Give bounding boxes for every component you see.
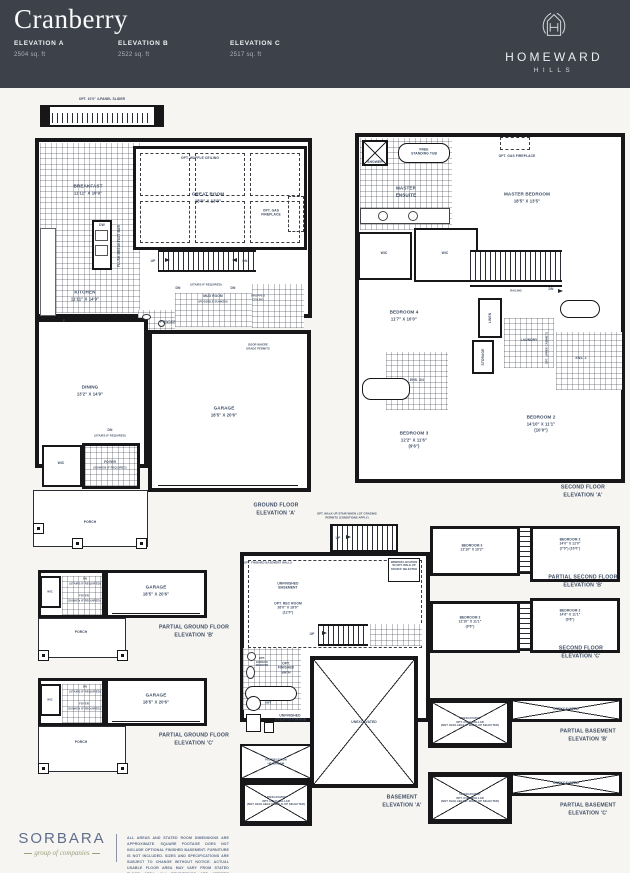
dropped-ceiling-note: DROPPED CEILING [249,295,267,302]
dn-label: DN [108,428,113,432]
room-breakfast: BREAKFAST 11'11" X 10'9" [74,184,103,197]
plan-caption-basement: BASEMENT ELEVATION 'A' [382,794,421,809]
room-bedroom2: BEDROOM 2 14'10" X 11'1" (10'0") [527,415,556,434]
house-emblem-icon [537,29,571,46]
stairs-note: (STAIRS IF REQUIRED) [69,582,101,586]
brochure-page: Cranberry ELEVATION A 2504 sq. ft ELEVAT… [0,0,630,873]
wic-walls [42,445,82,487]
porch-column [33,523,44,534]
up-arrow-icon [346,535,351,539]
stairs-note: (STAIRS IF REQUIRED) [94,434,126,438]
flourish-line [92,853,100,854]
dishwasher-label: DW [99,223,105,227]
fireplace-note: OPT. GAS FIREPLACE [260,209,282,218]
room-porch: PORCH [75,740,87,744]
plan-caption-ground: GROUND FLOOR ELEVATION 'A' [253,502,298,517]
room-unfinished-basement: UNFINISHED BASEMENT [271,582,305,591]
hwt-label: HWT [265,701,271,705]
unexcavated-label: UNEXCAVATED [351,720,376,724]
plan-caption: PARTIAL SECOND FLOOR ELEVATION 'B' [548,574,617,589]
room-bedroom4: BEDROOM 4 11'7" X 10'0" [390,310,419,323]
room-garage: GARAGE 18'5" X 20'6" [143,693,169,706]
elevation-c: ELEVATION C 2517 sq. ft [230,40,280,58]
basement-wall-note: OPT. FINISHED BASEMENT WALLS [244,561,292,565]
room-wic: WIC [442,251,449,255]
porch-column [72,538,83,549]
plan-caption: SECOND FLOOR ELEVATION 'C' [559,645,603,660]
up-arrow-icon [165,258,170,262]
shower-label: SHOWER [367,160,382,164]
elevation-c-area: 2517 sq. ft [230,52,280,58]
header: Cranberry ELEVATION A 2504 sq. ft ELEVAT… [0,0,630,88]
gas-fireplace-outline [500,137,530,150]
sorbara-logo: SORBARA group of companies [18,830,106,857]
room-porch: PORCH [84,520,96,524]
egress-note: OPT. EGRESS WINDOW [254,657,270,668]
garage-door [158,485,298,489]
room-dining: DINING 13'2" X 14'9" [77,385,103,398]
flourish-line [24,853,32,854]
cold-cellar-label: UNEXCAVATED OPT. COLD CELLAR (NOT AVAILA… [441,793,499,804]
up-arrow-icon [322,631,327,635]
window-note: WINDOW LOCATION W/ OPT. WALK-UP STAIR IF… [388,558,420,582]
kitchen-counter [40,228,56,316]
unexcavated-label: UNEXCAVATED [553,781,578,785]
door-grade-note: DOOR WHERE GRADE PERMITS [246,344,270,351]
footer-divider [116,834,117,862]
dn-label: DN [231,286,236,290]
foyer-note: (SUNKEN IF REQUIRED) [93,466,126,470]
dn-label: DN [176,286,181,290]
room-foyer: FOYER [104,460,116,464]
flush-bar-note: FLUSH BREAKFAST BAR [117,225,121,267]
room-kitchen: KITCHEN 11'11" X 14'9" [71,290,99,303]
room-wic: WIC [47,698,53,702]
homeward-hills-logo: HOMEWARD HILLS [494,8,614,74]
elevation-b: ELEVATION B 2522 sq. ft [118,40,168,58]
room-garage: GARAGE 18'5" X 20'6" [143,585,169,598]
plan-caption: PARTIAL BASEMENT ELEVATION 'C' [560,802,616,817]
island-sink [95,230,108,241]
water-heater-icon [246,696,261,711]
fridge-label: F [63,319,65,323]
opt-bath-note: OPT. FINISHED BATH [275,661,297,674]
wic-walls [358,232,412,280]
sorbara-name: SORBARA [18,830,106,847]
elevation-c-label: ELEVATION C [230,40,280,47]
down-arrow-icon [232,258,237,262]
dn-label: DN [243,259,248,263]
laundry-label: LAUNDRY [521,338,538,342]
slider-glazing [52,113,152,123]
railing-label: RAILING [510,289,522,293]
fireplace-note: OPT. GAS FIREPLACE [499,154,536,158]
utility-label: UNFINISHED UTILITY/STORAGE [275,714,305,723]
plan-caption-second: SECOND FLOOR ELEVATION 'A' [561,484,605,499]
porch-outline [38,726,126,772]
elevation-a-area: 2504 sq. ft [14,52,64,58]
dn-label: DN [549,287,554,291]
up-label: UP [310,632,315,636]
room-bedroom3: BEDROOM 3 12'10" X 10'2" [461,544,484,553]
toilet-icon [246,666,255,679]
up-label: UP [151,259,156,263]
room-bedroom3: BEDROOM 3 12'10" X 11'1" (9'6") [459,615,482,628]
room-ens34: ENS. 3/4 [410,378,424,382]
sorbara-subtitle: group of companies [18,849,106,857]
tub-icon [560,300,600,318]
foyer-note: (SUNKEN IF REQUIRED) [67,599,100,603]
room-foyer: FOYER [79,594,89,598]
dropped-ceiling-tile [252,284,304,328]
stairs-note: (STAIRS IF REQUIRED) [69,690,101,694]
stair-landing-tile [370,624,422,646]
toilet-icon [142,314,151,320]
cold-cellar-label: UNEXCAVATED OPT. COLD CELLAR (NOT AVAILA… [441,717,499,728]
elevation-a-label: ELEVATION A [14,40,64,47]
porch-column [117,650,128,661]
porch-column [38,650,49,661]
page-title: Cranberry [14,4,128,35]
slider-endcap [154,105,164,127]
room-foyer: FOYER [79,702,89,706]
porch-column [136,538,147,549]
plan-caption: PARTIAL GROUND FLOOR ELEVATION 'C' [159,732,229,747]
gas-fireplace-outline [288,196,304,232]
elevation-b-area: 2522 sq. ft [118,52,168,58]
slider-endcap [40,105,50,127]
furnace-icon [264,722,274,733]
cabinet-note: OPT. UPPER CABINETS [545,332,549,364]
elevation-b-label: ELEVATION B [118,40,168,47]
sink-icon [378,211,388,221]
mud-room-note: (POSSIBLE SUNKEN) [198,300,227,304]
foyer-note: (SUNKEN IF REQUIRED) [67,707,100,711]
porch-outline [33,490,148,547]
main-stairs [158,250,256,272]
up-label: UP [336,536,341,540]
room-mud-room: MUD ROOM [203,294,222,298]
tub-icon [362,378,410,400]
porch-column [117,763,128,774]
room-porch: PORCH [75,630,87,634]
unexcavated-label: UNEXCAVATED [553,707,578,711]
disclaimer-text: ALL AREAS AND STATED ROOM DIMENSIONS ARE… [127,836,229,873]
garage-door [112,721,200,725]
room-bedroom2: BEDROOM 2 14'6" X 11'1" (9'6") [560,608,581,621]
waffle-note: OPT. WAFFLE CEILING [181,156,219,160]
dn-label: DN [83,577,87,581]
garage-door [112,613,200,617]
room-master-bedroom: MASTER BEDROOM 18'5" X 13'5" [504,192,550,205]
dn-label: DN [83,685,87,689]
room-master-ensuite: MASTER ENSUITE [390,185,422,198]
room-ens2: ENS. 2 [575,356,586,360]
cold-cellar-label: UNEXCAVATED OPT. COLD CELLAR (NOT AVAILA… [247,796,305,807]
room-wic: WIC [381,251,388,255]
storage-label: STORAGE [481,349,485,366]
linen-label: LINEN [488,313,492,323]
room-garage: GARAGE 18'5" X 20'6" [211,406,237,419]
basement-stairs [318,624,368,646]
furnace-icon [246,714,261,732]
walkup-note: OPT. WALK-UP STAIR WHEN LOT GRADING PERM… [312,513,382,520]
elevation-a: ELEVATION A 2504 sq. ft [14,40,64,58]
room-rec-room: OPT. REC ROOM 26'0" X 18'0" (12'0") [274,601,302,614]
room-wic: WIC [58,461,65,465]
stairs-note: (STAIRS IF REQUIRED) [190,283,222,287]
room-powder: POWDER [160,320,175,324]
room-wic: WIC [47,590,53,594]
porch-column [38,763,49,774]
stairwell [470,250,562,282]
tub-label: FREE STANDING TUB [411,148,437,157]
vanity-counter [360,208,450,224]
brand-subname: HILLS [494,67,614,74]
down-arrow-icon [558,289,563,293]
porch-outline [38,618,126,658]
brand-name: HOMEWARD [494,50,614,64]
low-headroom-note: POSSIBLE LOW HEADROOM [263,759,289,766]
room-bedroom2: BEDROOM 2 14'0" X 12'0" (7'0") (10'0") [559,537,580,550]
plan-caption: PARTIAL GROUND FLOOR ELEVATION 'B' [159,624,229,639]
ensuite2-tile [556,332,622,390]
room-bedroom3: BEDROOM 3 12'2" X 11'6" (9'6") [400,431,429,450]
room-great-room: GREAT ROOM 18'0" X 13'0" [192,192,224,205]
island-sink [95,245,108,256]
plan-caption: PARTIAL BASEMENT ELEVATION 'B' [560,728,616,743]
sink-icon [408,211,418,221]
slider-note: OPT. 10'0" 4-PANEL SLIDER [79,97,125,101]
